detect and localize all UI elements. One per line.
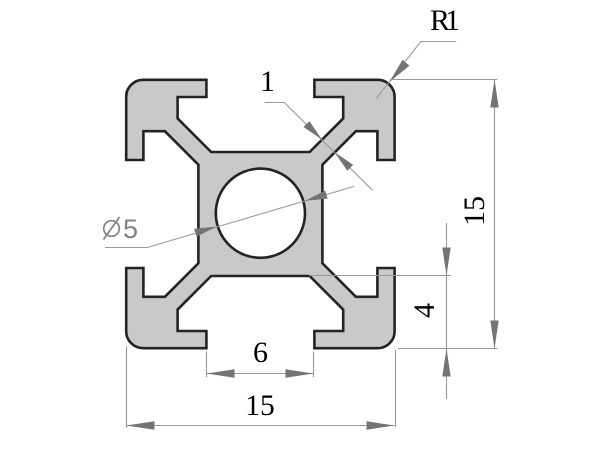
svg-text:1: 1 xyxy=(260,65,275,98)
svg-text:5: 5 xyxy=(123,214,138,244)
svg-text:6: 6 xyxy=(253,336,268,369)
svg-text:15: 15 xyxy=(245,390,275,422)
svg-text:15: 15 xyxy=(458,196,491,226)
svg-text:R1: R1 xyxy=(430,4,459,37)
svg-text:4: 4 xyxy=(408,303,441,318)
